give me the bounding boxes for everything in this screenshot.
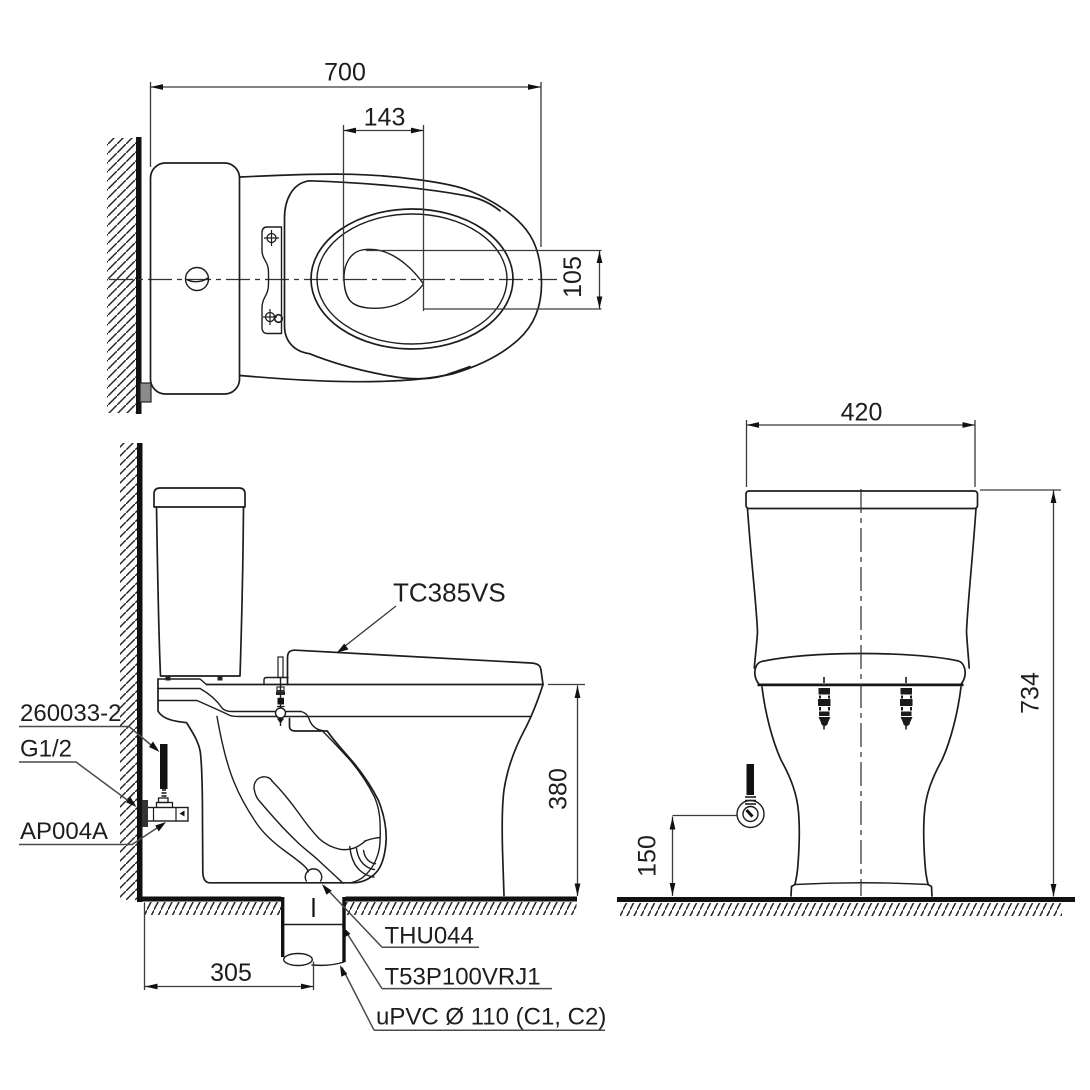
svg-text:G1/2: G1/2 — [20, 736, 72, 763]
svg-text:380: 380 — [545, 768, 573, 810]
svg-text:260033-2: 260033-2 — [20, 700, 121, 727]
svg-text:105: 105 — [559, 256, 587, 298]
svg-text:734: 734 — [1017, 672, 1045, 714]
svg-text:uPVC Ø 110 (C1, C2): uPVC Ø 110 (C1, C2) — [376, 1004, 606, 1031]
svg-text:420: 420 — [841, 399, 883, 427]
svg-text:AP004A: AP004A — [20, 818, 108, 845]
svg-text:TC385VS: TC385VS — [393, 578, 506, 608]
svg-text:150: 150 — [634, 835, 662, 877]
svg-text:305: 305 — [210, 959, 252, 987]
svg-text:700: 700 — [324, 59, 366, 87]
svg-text:THU044: THU044 — [385, 923, 474, 950]
svg-text:T53P100VRJ1: T53P100VRJ1 — [385, 964, 541, 991]
svg-text:143: 143 — [364, 104, 406, 132]
